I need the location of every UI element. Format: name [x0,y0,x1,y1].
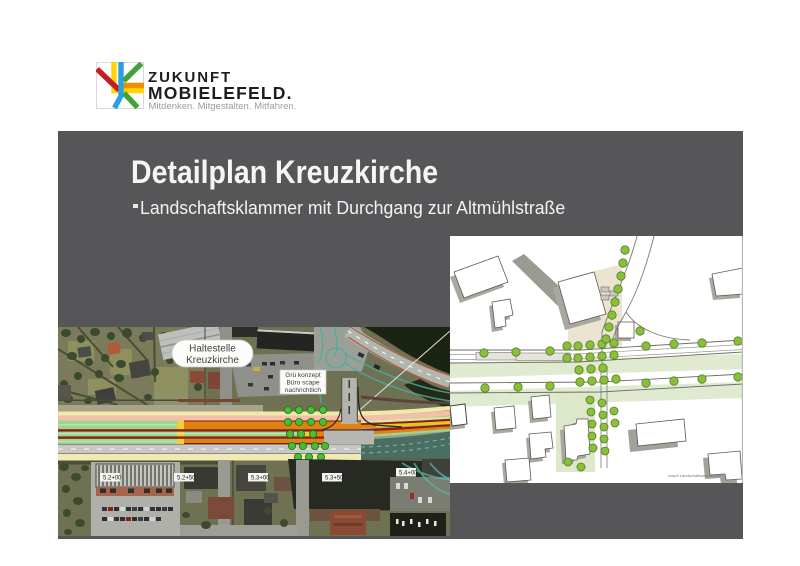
svg-text:scape Landschaftsarchitekten: scape Landschaftsarchitekten [668,473,721,478]
svg-text:Büro scape: Büro scape [287,380,320,387]
svg-text:5.3+00: 5.3+00 [251,476,270,482]
svg-text:Grü konzept: Grü konzept [285,372,321,379]
svg-text:Kreuzkirche: Kreuzkirche [186,355,239,366]
svg-text:5.4+00: 5.4+00 [399,471,418,477]
svg-text:5.2+00: 5.2+00 [103,476,122,482]
svg-text:5.3+50: 5.3+50 [325,476,344,482]
svg-text:nachrichtlich: nachrichtlich [285,387,322,394]
svg-text:Haltestelle: Haltestelle [189,344,236,355]
svg-text:5.2+50: 5.2+50 [177,476,196,482]
